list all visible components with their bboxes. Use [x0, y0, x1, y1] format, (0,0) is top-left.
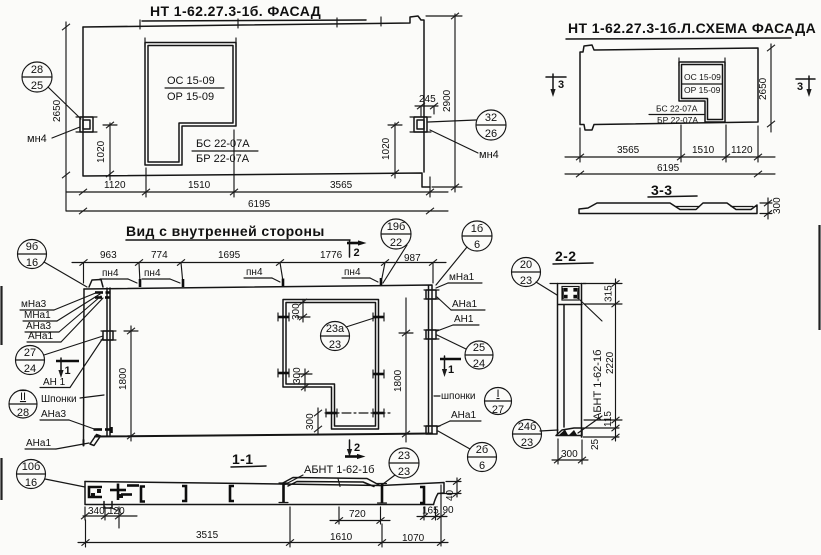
svg-text:ОР 15-09: ОР 15-09: [684, 85, 721, 95]
svg-text:1510: 1510: [692, 145, 715, 156]
svg-text:ОС 15-09: ОС 15-09: [684, 72, 721, 82]
svg-text:БС 22-07А: БС 22-07А: [196, 138, 250, 150]
svg-text:6: 6: [479, 460, 485, 472]
svg-text:1б: 1б: [471, 223, 483, 235]
svg-text:27: 27: [24, 347, 36, 359]
svg-text:23: 23: [521, 437, 533, 449]
svg-text:БР 22-07А: БР 22-07А: [657, 115, 698, 125]
svg-text:пн4: пн4: [246, 267, 263, 278]
svg-text:2: 2: [354, 247, 360, 259]
svg-text:ОР 15-09: ОР 15-09: [167, 91, 214, 103]
svg-text:1800: 1800: [393, 369, 404, 392]
svg-text:2: 2: [354, 442, 360, 454]
svg-text:1-1: 1-1: [232, 451, 253, 467]
svg-text:3: 3: [558, 79, 564, 91]
svg-text:23: 23: [520, 275, 532, 287]
svg-text:16: 16: [26, 257, 38, 269]
svg-text:340: 340: [88, 506, 105, 517]
svg-text:987: 987: [404, 253, 421, 264]
svg-text:Вид с внутренней стороны: Вид с внутренней стороны: [126, 223, 325, 239]
svg-text:6195: 6195: [248, 199, 271, 210]
svg-text:23: 23: [398, 450, 410, 462]
svg-text:пн4: пн4: [144, 268, 161, 279]
svg-text:16: 16: [25, 477, 37, 489]
svg-text:АН1: АН1: [454, 314, 474, 325]
svg-text:НТ 1-62.27.3-1б.Л.СХЕМА ФАСАДА: НТ 1-62.27.3-1б.Л.СХЕМА ФАСАДА: [568, 20, 816, 36]
svg-text:20: 20: [520, 259, 532, 271]
svg-text:9б: 9б: [26, 241, 38, 253]
svg-text:3565: 3565: [330, 180, 353, 191]
svg-text:40: 40: [445, 489, 456, 501]
svg-text:23: 23: [398, 466, 410, 478]
svg-text:300: 300: [291, 303, 302, 320]
svg-text:963: 963: [100, 250, 117, 261]
svg-text:720: 720: [349, 509, 366, 520]
svg-text:1: 1: [448, 364, 454, 376]
svg-text:3: 3: [797, 81, 803, 93]
svg-text:3565: 3565: [617, 145, 640, 156]
svg-text:22: 22: [390, 237, 402, 249]
svg-text:1120: 1120: [104, 180, 126, 191]
svg-text:24б: 24б: [518, 421, 537, 433]
svg-text:мн4: мн4: [479, 149, 499, 161]
svg-text:мн4: мн4: [27, 133, 47, 145]
svg-text:6: 6: [474, 239, 480, 251]
svg-text:АНа1: АНа1: [26, 438, 51, 449]
svg-text:1800: 1800: [118, 367, 129, 390]
svg-text:АНа1: АНа1: [451, 410, 476, 421]
svg-text:2б: 2б: [476, 444, 488, 456]
svg-text:АНа3: АНа3: [41, 409, 66, 420]
svg-text:300: 300: [292, 367, 303, 384]
svg-text:90: 90: [443, 505, 455, 516]
svg-text:1776: 1776: [320, 250, 343, 261]
svg-text:315: 315: [604, 285, 615, 302]
svg-text:1070: 1070: [402, 533, 425, 544]
svg-text:АНа1: АНа1: [28, 331, 53, 342]
svg-text:1610: 1610: [330, 532, 353, 543]
svg-text:10б: 10б: [22, 461, 41, 473]
svg-text:19б: 19б: [387, 221, 406, 233]
svg-text:мНа1: мНа1: [449, 272, 475, 283]
svg-text:1: 1: [65, 365, 71, 377]
svg-text:120: 120: [108, 506, 125, 517]
svg-text:АБНТ 1-62-1б: АБНТ 1-62-1б: [304, 464, 374, 476]
svg-text:6195: 6195: [657, 163, 680, 174]
svg-text:3-3: 3-3: [651, 182, 672, 198]
svg-text:II: II: [20, 391, 26, 403]
svg-text:пн4: пн4: [102, 268, 119, 279]
svg-text:23а: 23а: [326, 323, 345, 335]
svg-text:23: 23: [329, 339, 341, 351]
svg-text:1120: 1120: [731, 145, 753, 156]
svg-text:300: 300: [305, 413, 316, 430]
svg-text:28: 28: [17, 407, 29, 419]
svg-text:БР 22-07А: БР 22-07А: [196, 153, 250, 165]
svg-text:26: 26: [485, 128, 497, 140]
svg-text:25: 25: [31, 80, 43, 92]
svg-text:2650: 2650: [52, 99, 63, 122]
svg-text:1020: 1020: [381, 137, 392, 160]
svg-text:1510: 1510: [188, 180, 211, 191]
svg-text:300: 300: [561, 449, 578, 460]
svg-text:24: 24: [24, 363, 36, 375]
svg-text:I: I: [496, 388, 499, 400]
svg-text:2900: 2900: [442, 89, 453, 112]
svg-text:шпонки: шпонки: [441, 391, 475, 402]
svg-text:АН 1: АН 1: [43, 377, 66, 388]
svg-text:1020: 1020: [96, 140, 107, 163]
svg-text:ОС 15-09: ОС 15-09: [167, 75, 215, 87]
svg-text:АБНТ 1-62-1б: АБНТ 1-62-1б: [592, 350, 604, 420]
svg-text:НТ 1-62.27.3-1б. ФАСАД: НТ 1-62.27.3-1б. ФАСАД: [150, 3, 321, 19]
svg-text:2-2: 2-2: [555, 248, 576, 264]
svg-text:3515: 3515: [196, 530, 219, 541]
svg-text:2650: 2650: [758, 77, 769, 100]
svg-text:мНа3: мНа3: [21, 299, 47, 310]
svg-text:Шпонки: Шпонки: [41, 394, 77, 405]
svg-text:32: 32: [485, 112, 497, 124]
svg-text:АНа1: АНа1: [452, 299, 477, 310]
svg-text:24: 24: [473, 358, 485, 370]
svg-text:БС 22-07А: БС 22-07А: [656, 104, 698, 114]
svg-text:25: 25: [590, 438, 601, 450]
svg-text:245: 245: [419, 94, 436, 105]
svg-text:1695: 1695: [218, 250, 241, 261]
svg-text:165: 165: [422, 506, 439, 517]
svg-text:115: 115: [603, 411, 614, 427]
svg-text:пн4: пн4: [344, 267, 361, 278]
svg-text:МНа1: МНа1: [24, 310, 51, 321]
svg-text:2220: 2220: [605, 351, 616, 374]
svg-text:27: 27: [492, 404, 504, 416]
svg-text:25: 25: [473, 342, 485, 354]
svg-text:28: 28: [31, 64, 43, 76]
svg-text:300: 300: [772, 197, 783, 214]
svg-text:774: 774: [151, 250, 168, 261]
